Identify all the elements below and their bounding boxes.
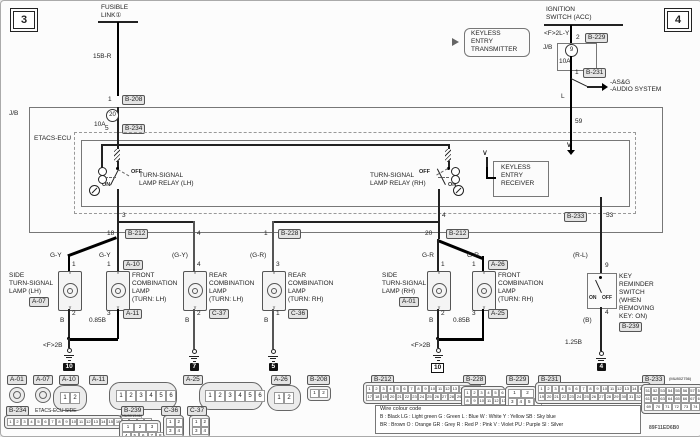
pin-cell: 6 (139, 432, 148, 437)
pin-cell: 11 (77, 418, 84, 426)
pin-20: 20 (425, 230, 432, 238)
pin-cell: 72 (672, 403, 681, 411)
front-rh-label4: (TURN: RH) (498, 296, 533, 304)
pin-cell: 4 (201, 427, 210, 436)
wire-label-l: L (561, 93, 565, 101)
pin-cell: 10 (429, 385, 436, 393)
connector-b208: 12 (307, 386, 331, 401)
wire-rear-rh (272, 221, 274, 271)
relay-rh-name: TURN-SIGNAL (370, 172, 414, 180)
pin-cell: 5 (394, 385, 401, 393)
wire-lh-out (117, 189, 119, 239)
bus-lh (117, 221, 195, 223)
pin-cell: 67 (689, 395, 696, 403)
side-rh-label3: LAMP (RH) (382, 288, 415, 296)
connector-label-c36: C-36 (288, 309, 308, 319)
colour-code-line2: BR : Brown O : Orange GR : Grey R : Red … (380, 422, 563, 428)
pin-row: 12 (192, 418, 207, 427)
pin-row: 697071727374 (644, 403, 700, 411)
pin-cell: 12 (493, 397, 500, 405)
wire-label-b-key: (B) (583, 317, 592, 325)
pin-row: 123 (122, 423, 158, 432)
pin-row: 12 (166, 418, 181, 427)
side-lh-label1: SIDE (9, 272, 24, 280)
lamp-symbol-side-rh (427, 271, 451, 311)
rear-rh-label3: LAMP (288, 288, 306, 296)
pin-cell: 3 (225, 390, 235, 402)
pin-cell: 11 (608, 385, 615, 393)
wire-label-15b-r: 15B-R (93, 53, 111, 61)
ground-symbol-left (64, 348, 74, 361)
ground-num-key: 4 (597, 363, 606, 371)
wire-label-2l-y: <F>2L-Y (544, 30, 569, 38)
connector-label-b231: B-231 (583, 68, 606, 78)
relay-lh-coil-drop (101, 144, 103, 168)
wire-side-rh (437, 239, 439, 271)
wire-rh-out (438, 189, 440, 239)
side-lh-label3: LAMP (LH) (9, 288, 41, 296)
ground-num-rear-rh: 5 (269, 363, 278, 371)
ecu-pin-3: 3 (122, 212, 126, 220)
pin-row: 123456 (116, 390, 170, 402)
relay-rh-name2: LAMP RELAY (RH) (370, 180, 426, 188)
pin-cell: 14 (100, 418, 107, 426)
pin-cell: 11 (485, 397, 492, 405)
wire-label-b-3: B (264, 317, 268, 325)
branch-line (587, 86, 602, 88)
connector-label-a07: A-07 (29, 297, 49, 307)
pin-cell: 1 (166, 418, 175, 427)
wire-label-b-2: B (185, 317, 189, 325)
connector-label-a11: A-11 (123, 309, 142, 319)
pin-cell: 12 (616, 385, 623, 393)
pin-cell: 6 (255, 390, 265, 402)
wire-label-gr-2: G-R (422, 252, 434, 260)
ground-symbol-rear-lh (189, 349, 199, 362)
wiring-diagram-page: 3 4 FUSIBLE LINK① 15B-R 1 B-208 J/B 20 1… (0, 0, 700, 437)
pin-cell: 4 (485, 389, 492, 397)
pin-cell: 1 (116, 390, 126, 402)
wire-label-085b-1: 0.85B (89, 317, 106, 325)
strip-label-b208: B-208 (307, 375, 330, 385)
page-number-right: 4 (667, 11, 689, 29)
connector-c37: 1234 (189, 415, 210, 437)
pin-cell: 69 (644, 403, 653, 411)
side-rh-label1: SIDE (382, 272, 397, 280)
pin-row: 12 (508, 389, 534, 398)
pin-cell: 2 (521, 389, 534, 398)
pin-cell: 26 (590, 393, 597, 401)
connector-a25: 123456 (199, 382, 263, 410)
pin-cell: 55 (674, 387, 681, 395)
pin-cell: 9 (594, 385, 601, 393)
fuse-9-amp: 10A (559, 58, 571, 66)
connector-a01 (9, 387, 25, 403)
lamp-symbol-front-lh (106, 271, 130, 311)
connector-label-a26: A-26 (488, 260, 508, 270)
wire-front-lh-gnd (117, 309, 119, 339)
fusible-link-label: FUSIBLE (101, 4, 128, 12)
fuse-20: 20 (106, 109, 119, 122)
pin-cell: 2 (175, 418, 184, 427)
pin-cell: 8 (587, 385, 594, 393)
pin-cell: 2 (319, 389, 328, 398)
strip-note-b234: ETACS-ECU SIDE (35, 408, 77, 414)
side-lh-label2: TURN-SIGNAL (9, 280, 53, 288)
connector-b239: 123456789 (119, 420, 161, 437)
pin-cell: 30 (620, 393, 627, 401)
pin-cell: 11 (436, 385, 443, 393)
pin-cell: 23 (411, 393, 418, 401)
pin-cell: 29 (613, 393, 620, 401)
relay-lh-feed (117, 132, 119, 149)
rear-rh-label2: COMBINATION (288, 280, 333, 288)
pin-cell: 10 (601, 385, 608, 393)
etacs-ecu-label: ETACS-ECU (34, 135, 71, 143)
keyless-receiver-label1: KEYLESS (501, 164, 531, 172)
colour-code-line1: B : Black LG : Light green G : Green L :… (380, 414, 556, 420)
strip-label-a10: A-10 (59, 375, 79, 385)
front-lh-label2: COMBINATION (132, 280, 177, 288)
pin-cell: 62 (651, 395, 658, 403)
pin-cell: 6 (573, 385, 580, 393)
rear-rh-label1: REAR (288, 272, 306, 280)
rear-lh-label2: COMBINATION (209, 280, 254, 288)
pin-top-rear-lh: 4 (197, 261, 201, 269)
strip-label-a07: A-07 (33, 375, 53, 385)
pin-cell: 28 (448, 393, 455, 401)
pin-bot-front-lh: 3 (107, 310, 111, 318)
pin-cell: 5 (566, 385, 573, 393)
pin-cell: 2 (471, 389, 478, 397)
lamp-symbol-rear-rh (262, 271, 286, 311)
pin-cell: 4 (146, 390, 156, 402)
pin-cell: 28 (605, 393, 612, 401)
pin-cell: 14 (631, 385, 638, 393)
connector-label-a01: A-01 (399, 297, 419, 307)
connector-label-b228: B-228 (278, 229, 301, 239)
pin-cell: 4 (28, 418, 35, 426)
pin-cell: 10 (70, 418, 77, 426)
pin-cell: 61 (644, 395, 651, 403)
connector-label-b212-lh: B-212 (125, 229, 148, 239)
relay-lh-transistor-icon (89, 185, 100, 196)
ground-num-right: 10 (431, 363, 444, 373)
rear-lh-label3: LAMP (209, 288, 227, 296)
pin-row: 34 (166, 427, 181, 436)
pin-cell: 3 (478, 389, 485, 397)
ecu-pin-4: 4 (442, 212, 446, 220)
pin-cell: 27 (598, 393, 605, 401)
pin-cell: 2 (201, 418, 210, 427)
keyless-transmitter-label2: ENTRY (471, 38, 493, 46)
internal-rail (101, 144, 449, 146)
pin-cell: 52 (651, 387, 658, 395)
junction-label-rh: <F>2B (411, 342, 431, 350)
wire-front-lh (117, 239, 119, 271)
pin-cell: 23 (568, 393, 575, 401)
pin-cell: 22 (560, 393, 567, 401)
pin-cell: 57 (689, 387, 696, 395)
pin-row: 6162636465666768 (644, 395, 700, 403)
pin-cell: 70 (653, 403, 662, 411)
rear-lh-label4: (TURN: LH) (209, 296, 243, 304)
pin-top-side-lh: 1 (72, 261, 76, 269)
pin-cell: 1 (508, 389, 521, 398)
front-lh-label4: (TURN: LH) (132, 296, 166, 304)
connector-a26: 12 (267, 385, 301, 411)
key-switch-on-label: ON (589, 295, 597, 301)
strip-label-a11: A-11 (89, 375, 108, 385)
pin-cell: 4 (175, 427, 184, 436)
wire-label-b-4: B (429, 317, 433, 325)
front-rh-label2: COMBINATION (498, 280, 543, 288)
pin-cell: 13 (451, 385, 458, 393)
pin-cell: 26 (433, 393, 440, 401)
pin-cell: 22 (403, 393, 410, 401)
ignition-switch-label1: IGNITION (546, 6, 575, 14)
pin-top-side-rh: 1 (441, 261, 445, 269)
wire-ignition (570, 25, 572, 45)
pin-cell: 13 (623, 385, 630, 393)
connector-b212: 1234567891011121314151617181920212223242… (363, 382, 471, 404)
strip-label-a01: A-01 (7, 375, 27, 385)
wire-label-gy-2: G-Y (99, 252, 111, 260)
pin-cell: 1 (205, 390, 215, 402)
pin-cell: 5 (492, 389, 499, 397)
relay-lh-name2: LAMP RELAY (LH) (139, 180, 194, 188)
colour-code-title: Wire colour code (380, 406, 421, 412)
ecu-pin-53: 53 (606, 212, 613, 220)
key-switch-pivot-dot (599, 276, 602, 279)
wire-lh-gnd-stub (68, 338, 70, 348)
key-switch-label3: SWITCH (619, 289, 645, 297)
pin-row: 12345678910111213141516 (366, 385, 468, 393)
ground-num-left: 10 (63, 363, 75, 371)
wire-junction-lh (68, 338, 118, 341)
pin-cell: 27 (441, 393, 448, 401)
pin-cell: 7 (49, 418, 56, 426)
pin-cell: 1 (464, 389, 471, 397)
strip-code-b233: (MU802756) (669, 377, 691, 382)
connector-c36: 1234 (163, 415, 184, 437)
pin-cell: 3 (166, 427, 175, 436)
wire-label-rl: (R-L) (573, 252, 588, 260)
ecu-antenna-arrow-icon (567, 150, 575, 159)
pin-cell: 2 (70, 392, 80, 404)
pin-row: 34 (192, 427, 207, 436)
wire-rh-gnd-stub (437, 338, 439, 348)
front-rh-label3: LAMP (498, 288, 516, 296)
branch-diagonal (570, 78, 587, 87)
pin-cell: 64 (666, 395, 673, 403)
pin-cell: 2 (373, 385, 380, 393)
pin-cell: 5 (245, 390, 255, 402)
pin-cell: 1 (538, 385, 545, 393)
pin-row: 12 (310, 389, 328, 398)
keyless-receiver-label2: ENTRY (501, 172, 523, 180)
pin-row: 12 (274, 392, 294, 404)
pin-cell: 3 (552, 385, 559, 393)
pin-cell: 21 (396, 393, 403, 401)
pin-bot-rear-rh: 1 (276, 310, 280, 318)
doc-code: 89F11ED6B0 (649, 425, 679, 431)
wire-key-switch (600, 197, 602, 281)
pin-row: 123456789101112131415161718 (538, 385, 648, 393)
pin-cell: 15 (107, 418, 114, 426)
wire-front-rh-gnd (482, 309, 484, 339)
wire-fusible (117, 22, 119, 96)
branch-label-audio: -AUDIO SYSTEM (610, 86, 661, 94)
pin-cell: 63 (659, 395, 666, 403)
pin-row: 1234567 (464, 389, 502, 397)
front-lh-label3: LAMP (132, 288, 150, 296)
wire-rear-rh-gnd (272, 309, 274, 349)
keyless-transmitter-label3: TRANSMITTER (471, 46, 517, 54)
pin-cell: 51 (644, 387, 651, 395)
pin-top-key-switch: 9 (605, 262, 609, 270)
wire-junction-rh (437, 338, 484, 341)
bus-rh (273, 221, 439, 223)
connector-b234: 1234567891011121314151617181920 (4, 415, 122, 429)
wire-label-gr-3: G-R (467, 252, 479, 260)
wire-label-125b: 1.25B (565, 339, 582, 347)
relay-lh-link (105, 177, 116, 178)
relay-rh-coil (451, 168, 458, 184)
ecu-antenna-icon: ∨ (566, 141, 572, 149)
connector-a07 (35, 387, 51, 403)
relay-lh-name: TURN-SIGNAL (139, 172, 183, 180)
pin-cell: 20 (545, 393, 552, 401)
pin-cell: 9 (422, 385, 429, 393)
key-reminder-switch (587, 273, 617, 309)
pin-cell: 74 (691, 403, 700, 411)
key-switch-label2: REMINDER (619, 281, 654, 289)
pin-cell: 5 (156, 390, 166, 402)
front-lh-label1: FRONT (132, 272, 154, 280)
strip-label-a25: A-25 (183, 375, 203, 385)
ignition-switch-label2: SWITCH (ACC) (546, 14, 592, 22)
connector-label-a10: A-10 (123, 260, 143, 270)
pin-cell: 4 (387, 385, 394, 393)
pin-cell: 25 (583, 393, 590, 401)
pin-cell: 1 (60, 392, 70, 404)
transmitter-icon (452, 38, 463, 46)
key-switch-label4: (WHEN (619, 297, 641, 305)
pin-cell: 19 (381, 393, 388, 401)
pin-cell: 31 (627, 393, 634, 401)
pin-cell: 7 (408, 385, 415, 393)
relay-lh-coil (98, 168, 105, 184)
key-switch-off-label: OFF (602, 295, 612, 301)
pin-cell: 7 (148, 432, 157, 437)
pin-row: 51525354555657585960 (644, 387, 700, 395)
pin-cell: 20 (388, 393, 395, 401)
pin-cell: 10 (478, 397, 485, 405)
lamp-symbol-side-lh (58, 271, 82, 311)
connector-b231: 1234567891011121314151617181920212223242… (535, 382, 651, 404)
pin-cell: 5 (131, 432, 140, 437)
relay-rh-off-label: OFF (419, 169, 430, 175)
pin-cell: 7 (580, 385, 587, 393)
strip-label-b229: B-229 (506, 375, 529, 385)
wire-side-rh-gnd (437, 309, 439, 339)
connector-label-b239: B-239 (619, 322, 642, 332)
pin-cell: 4 (235, 390, 245, 402)
pin-4-rear-lh: 4 (197, 230, 201, 238)
pin-cell: 12 (85, 418, 92, 426)
lamp-symbol-front-rh (472, 271, 496, 311)
pin-cell: 18 (373, 393, 380, 401)
pin-cell: 13 (92, 418, 99, 426)
pin-cell: 1 (274, 392, 284, 404)
page-number-left: 3 (13, 11, 35, 29)
keyless-receiver-label3: RECEIVER (501, 180, 534, 188)
pin-cell: 2 (126, 390, 136, 402)
pin-cell: 8 (56, 418, 63, 426)
strip-label-a26: A-26 (271, 375, 291, 385)
pin-cell: 68 (696, 395, 700, 403)
connector-label-c37: C-37 (209, 309, 229, 319)
wire-acc (570, 56, 572, 152)
pin-cell: 1 (310, 389, 319, 398)
pin-cell: 1 (366, 385, 373, 393)
front-rh-label1: FRONT (498, 272, 520, 280)
key-switch-label5: REMOVING (619, 305, 654, 313)
wire-side-lh-gnd (68, 309, 70, 339)
pin-cell: 4 (559, 385, 566, 393)
pin-cell: 3 (380, 385, 387, 393)
wire-front-rh (482, 256, 484, 271)
pin-2-b229: 2 (576, 34, 580, 42)
pin-row: 123456 (205, 390, 257, 402)
connector-label-b208: B-208 (122, 95, 145, 105)
pin-cell: 6 (42, 418, 49, 426)
receiver-antenna-icon: ∨ (482, 149, 488, 157)
connector-label-a25: A-25 (488, 309, 508, 319)
pin-top-front-rh: 1 (472, 261, 476, 269)
pin-cell: 65 (674, 395, 681, 403)
pin-row: 8910111213141516 (464, 397, 502, 405)
pin-bot-key-switch: 4 (605, 309, 609, 317)
pin-cell: 21 (553, 393, 560, 401)
rear-rh-label4: (TURN: RH) (288, 296, 323, 304)
pin-bot-side-lh: 2 (72, 310, 76, 318)
pin-cell: 2 (134, 423, 146, 432)
connector-b233: 5152535455565758596061626364656667686970… (641, 384, 700, 414)
pin-cell: 71 (663, 403, 672, 411)
jb-right-label: J/B (543, 44, 552, 52)
pin-cell: 3 (146, 423, 158, 432)
pin-cell: 25 (426, 393, 433, 401)
receiver-antenna-lead (486, 167, 496, 179)
pin-bot-front-rh: 3 (472, 310, 476, 318)
fuse-20-amp: 10A (94, 121, 106, 129)
pin-cell: 6 (401, 385, 408, 393)
wire-label-gr-1: (G-R) (250, 252, 266, 260)
ground-symbol-right (433, 348, 443, 361)
pin-bot-side-rh: 2 (441, 310, 445, 318)
pin-cell: 2 (545, 385, 552, 393)
pin-cell: 24 (418, 393, 425, 401)
pin-cell: 3 (136, 390, 146, 402)
pin-cell: 56 (681, 387, 688, 395)
key-switch-label6: KEY: ON) (619, 313, 647, 321)
pin-1-b208: 1 (108, 96, 112, 104)
pin-row: 17181920212223242526272829303132 (366, 393, 468, 401)
ecu-pin-59: 59 (575, 118, 582, 126)
keyless-transmitter-label1: KEYLESS (471, 30, 501, 38)
